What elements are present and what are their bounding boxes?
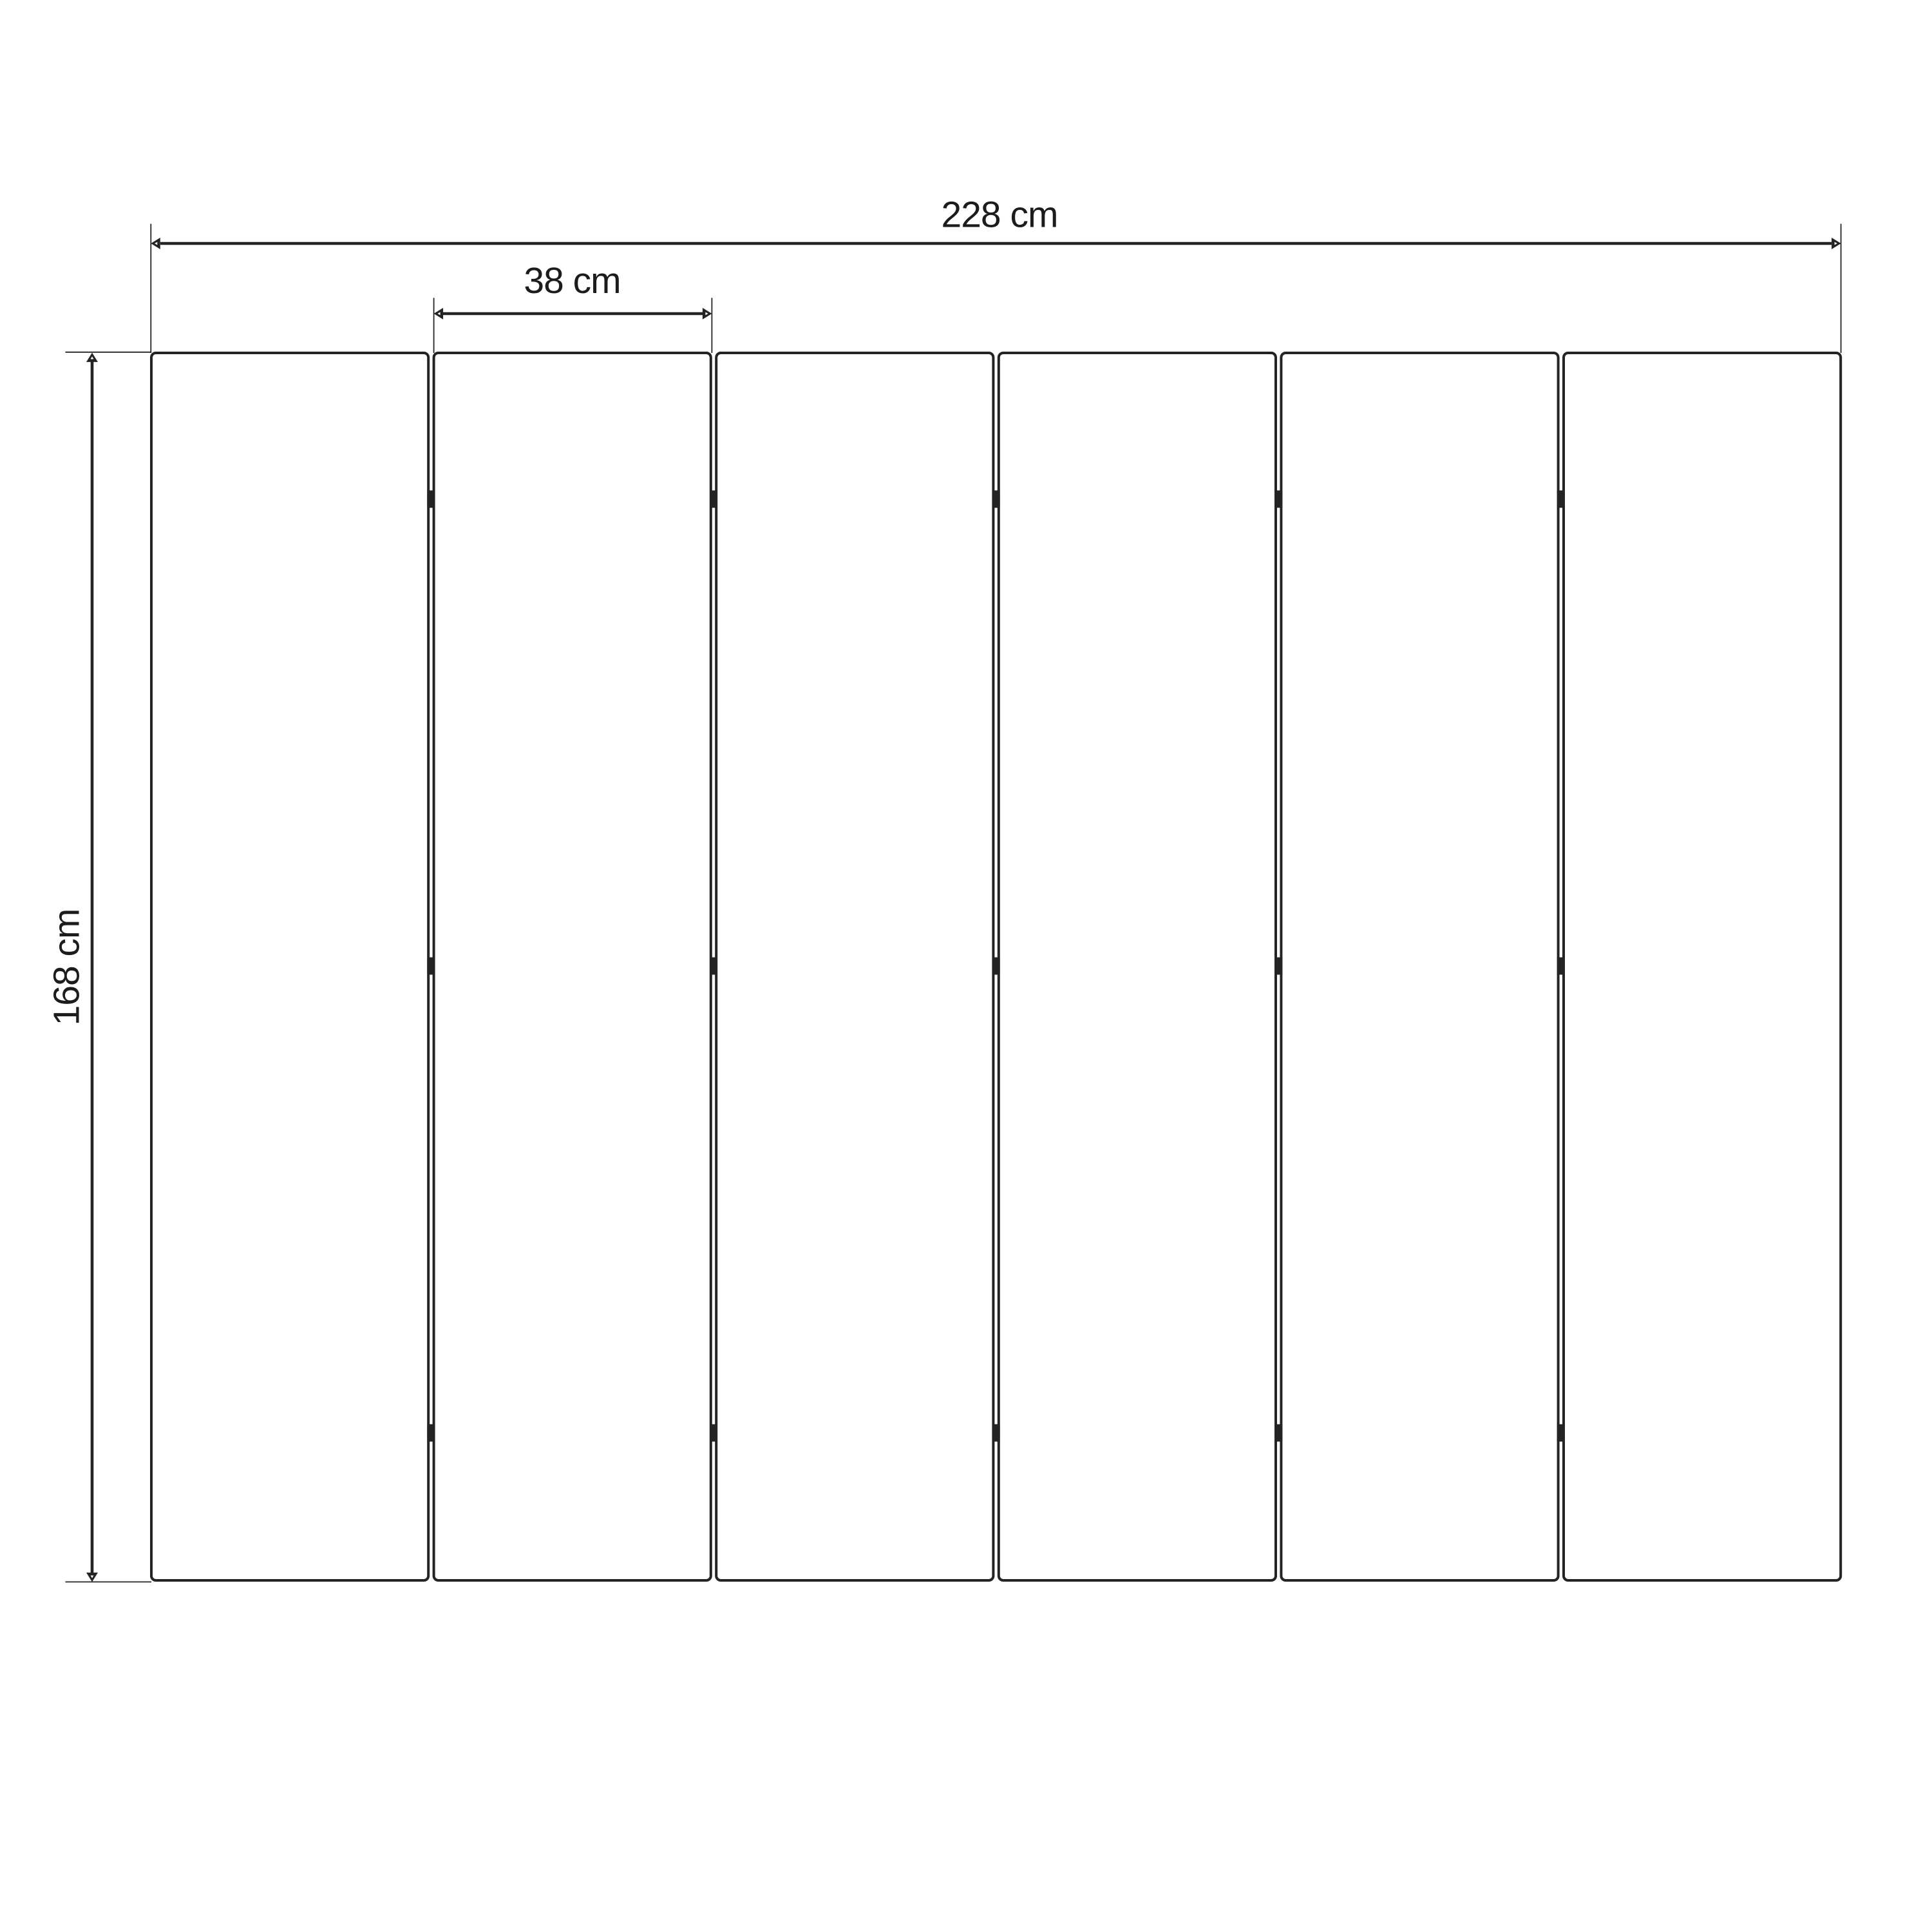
svg-text:228 cm: 228 cm [942,194,1058,236]
svg-text:38 cm: 38 cm [524,260,620,301]
svg-text:168 cm: 168 cm [46,909,88,1026]
